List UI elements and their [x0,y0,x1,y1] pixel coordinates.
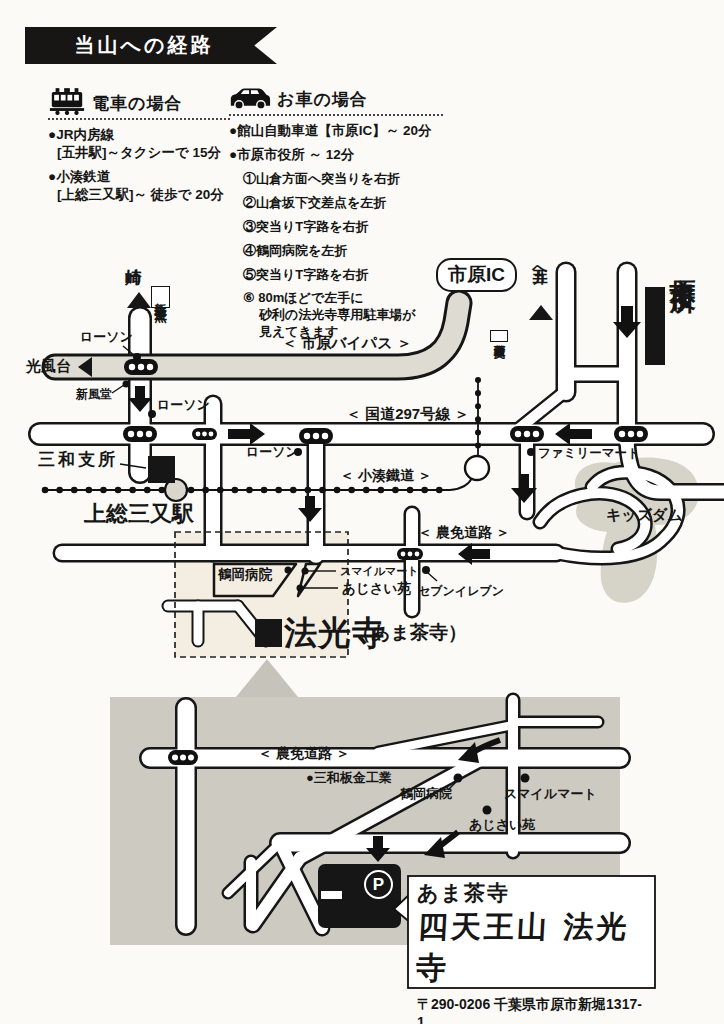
car-item: ●館山自動車道【市原IC】～ 20分 [229,122,443,140]
traffic-light-icon [510,426,544,442]
map-label-family-mart: ファミリーマート [538,445,640,462]
traffic-light-icon [397,548,423,560]
train-item-line: ●JR内房線 [48,127,230,144]
car-step: ④鶴岡病院を左折 [229,242,443,260]
map-label-hokoji-sub: （あま茶寺） [352,620,467,646]
detail-label-ajisai-en: あじさい苑 [469,816,535,834]
train-section: 電車の場合 ●JR内房線 [五井駅]～タクシーで 15分 ●小湊鉄道 [上総三又… [48,86,230,204]
map-label-lawson: ローソン [157,396,210,414]
hokoji-building [255,619,282,647]
contact-info: あま茶寺 四天王山 法光寺 〒290-0206 千葉県市原市新堀1317-1 T… [417,879,649,1024]
car-section-header: お車の場合 [229,86,443,116]
car-section: お車の場合 ●館山自動車道【市原IC】～ 20分 ●市原市役所 ～ 12分 ①山… [229,86,443,341]
detail-label-sanmon-gate: 山門 [320,890,343,900]
traffic-light-icon [299,428,333,444]
map-label-sanwa-branch: 三和支所 [38,448,118,471]
map-badge-ichihara-ic: 市原IC [436,258,517,292]
train-section-header: 電車の場合 [48,86,230,120]
temple-address: 〒290-0206 千葉県市原市新堀1317-1 [417,996,649,1024]
map-label-lawson: ローソン [246,443,299,461]
traffic-light-icon [168,750,198,765]
car-step: ①山倉方面へ突当りを右折 [229,170,443,188]
map-label-kominato-railway: ＜ 小湊鐵道 ＞ [340,467,432,485]
car-step: ③突当りT字路を右折 [229,218,443,236]
map-label-ajisai-en: あじさい苑 [342,580,411,598]
triangle-up-anesaki [127,292,151,308]
map-label-yamakura-intersection: 山倉坂下交差点 [490,330,508,342]
car-steps-list: ①山倉方面へ突当りを右折 ②山倉坂下交差点を左折 ③突当りT字路を右折 ④鶴岡病… [229,170,443,341]
traffic-light-icon [192,428,217,440]
map-label-lawson: ローソン [80,328,133,346]
train-section-title: 電車の場合 [92,92,182,115]
car-step: ②山倉坂下交差点を左折 [229,194,443,212]
car-item: ●市原市役所 ～ 12分 [229,146,443,164]
train-item-detail: [五井駅]～タクシーで 15分 [48,145,230,162]
temple-nickname: あま茶寺 [417,879,649,907]
sanwa-branch-building [148,456,175,483]
detail-label-sanwa-bankin: ●三和板金工業 [306,769,392,787]
traffic-light-icon [124,359,158,375]
triangle-up-goi [529,305,553,320]
map-label-kazusa-mitsumata-station: 上総三又駅 [84,499,194,529]
detail-label-smile-mart: スマイルマート [504,785,597,803]
parking-icon: P [364,870,393,899]
city-hall-building [645,287,665,365]
map-label-goi: 五井へ [530,258,549,275]
train-icon [48,86,86,115]
zoom-callout-triangle [236,659,298,697]
map-label-shinpudo: 新風堂 [76,386,112,403]
detail-label-noumen-road: ＜ 農免道路 ＞ [258,745,350,763]
train-item-detail: [上総三又駅]～ 徒歩で 20分 [48,187,230,204]
train-list: ●JR内房線 [五井駅]～タクシーで 15分 ●小湊鉄道 [上総三又駅]～ 徒歩… [48,127,230,204]
map-label-noumen-road: ＜ 農免道路 ＞ [418,524,510,542]
map-label-smile-mart: スマイルマート [340,564,419,579]
car-icon [229,86,271,111]
scanned-route-page: 当山への経路 電車の場合 ●JR内房線 [五井駅]～タクシーで 15分 ●小湊鉄… [0,0,724,1024]
map-label-city-hall: 市原市役所 [666,258,701,268]
map-label-shinsei-intersection: 新生交差点 [151,286,170,308]
temple-calligraphy-logo: 四天王山 法光寺 [415,907,651,989]
map-label-kids-dam: キッズダム [606,506,683,525]
map-label-seven-eleven: セブンイレブン [418,583,504,600]
map-label-kofudai: 光風台 [26,357,71,376]
car-section-title: お車の場合 [277,88,368,111]
map-label-ichihara-bypass: ＜ 市原バイパス ＞ [282,334,412,353]
traffic-light-icon [614,426,648,442]
car-step: ⑤突当りT字路を右折 [229,266,443,284]
traffic-light-icon [123,426,157,442]
page-title-banner: 当山への経路 [25,27,277,64]
map-label-route297: ＜ 国道297号線 ＞ [346,405,469,424]
train-item-line: ●小湊鉄道 [48,169,230,186]
railway-junction-circle [465,456,489,480]
map-label-tsuruoka-hospital: 鶴岡病院 [218,566,272,584]
detail-label-tsuruoka-hospital: 鶴岡病院 [400,785,452,803]
page-title: 当山への経路 [75,34,214,56]
